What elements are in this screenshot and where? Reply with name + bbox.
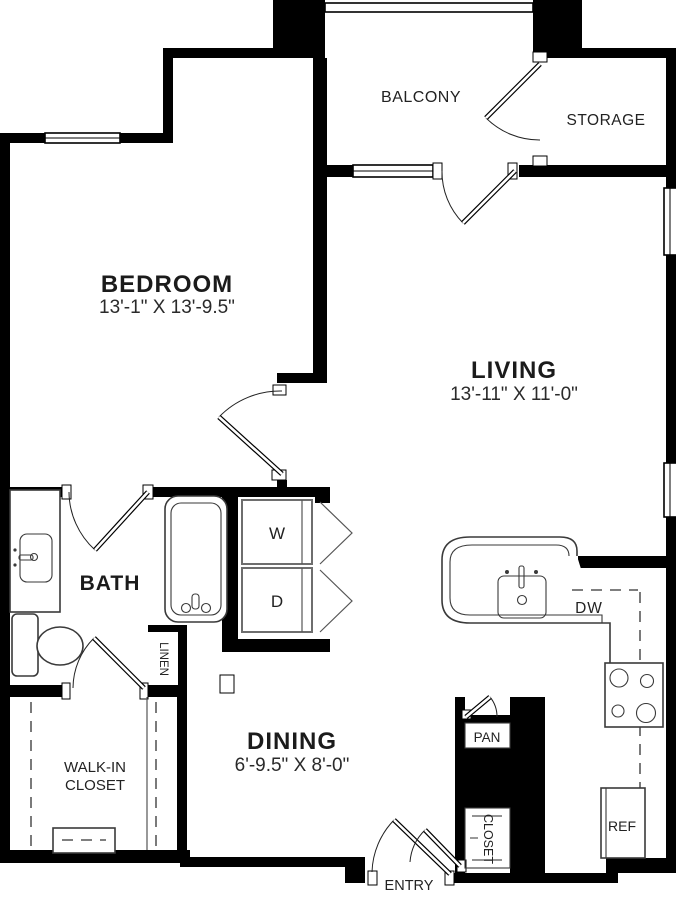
walk-in-closet-label-line2: CLOSET bbox=[65, 777, 125, 794]
entry-label: ENTRY bbox=[385, 878, 434, 894]
washer-bifold-icon bbox=[320, 502, 352, 564]
pantry-door bbox=[466, 697, 497, 717]
kitchen bbox=[442, 537, 663, 858]
bath-door bbox=[69, 492, 148, 550]
entry-closet-label: CLOSET bbox=[481, 814, 495, 864]
laundry-closet bbox=[242, 500, 352, 632]
walk-in-closet-label-line1: WALK-IN bbox=[64, 759, 126, 776]
stove bbox=[605, 663, 663, 727]
storage-door bbox=[486, 64, 540, 140]
washer-label: W bbox=[269, 524, 285, 543]
dryer-label: D bbox=[271, 592, 283, 611]
dishwasher-label: DW bbox=[575, 600, 603, 617]
living-balcony-window bbox=[353, 165, 433, 177]
living-dims: 13'-11" X 11'-0" bbox=[450, 384, 578, 405]
bedroom-window bbox=[45, 133, 120, 143]
closet-dresser bbox=[53, 828, 115, 853]
balcony-label: BALCONY bbox=[381, 89, 461, 106]
refrigerator-label: REF bbox=[608, 818, 636, 834]
balcony-railing bbox=[325, 3, 533, 12]
dryer-bifold-icon bbox=[320, 570, 352, 632]
dining-label: DINING bbox=[247, 728, 337, 755]
linen-label: LINEN bbox=[157, 642, 169, 676]
storage-label: STORAGE bbox=[566, 112, 645, 129]
floor-plan-page: BEDROOM 13'-1" X 13'-9.5" LIVING 13'-11"… bbox=[0, 0, 676, 900]
bedroom-door bbox=[219, 391, 282, 474]
vanity-sink bbox=[10, 490, 60, 612]
living-right-window bbox=[664, 188, 676, 255]
bath-label: BATH bbox=[80, 572, 141, 595]
bathtub bbox=[165, 496, 227, 622]
bedroom-dims: 13'-1" X 13'-9.5" bbox=[99, 297, 235, 318]
floor-plan-drawing: BEDROOM 13'-1" X 13'-9.5" LIVING 13'-11"… bbox=[0, 0, 676, 900]
bedroom-label: BEDROOM bbox=[101, 271, 233, 298]
dining-dims: 6'-9.5" X 8'-0" bbox=[235, 755, 350, 776]
kitchen-right-window bbox=[664, 463, 676, 517]
windows bbox=[45, 3, 676, 517]
balcony-living-door bbox=[442, 171, 515, 223]
toilet bbox=[12, 614, 83, 676]
pantry-label: PAN bbox=[474, 730, 501, 745]
living-label: LIVING bbox=[471, 357, 557, 384]
